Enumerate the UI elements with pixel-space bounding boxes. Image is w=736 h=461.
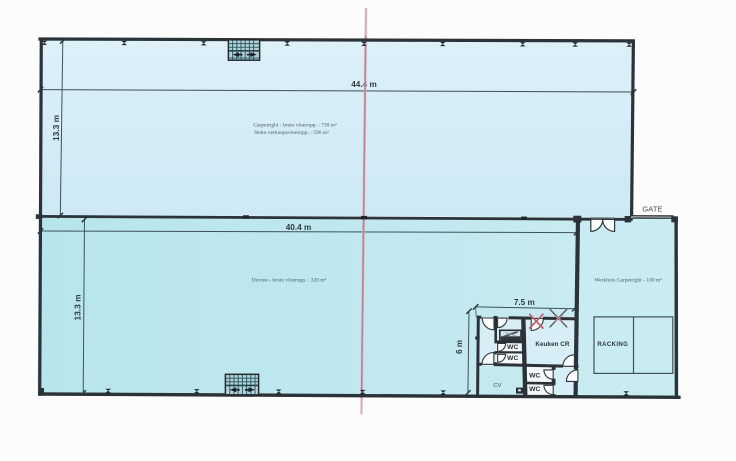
svg-text:WC: WC (507, 344, 518, 351)
svg-text:RACKING: RACKING (597, 342, 628, 348)
svg-text:Carpetright - bruto vloeropp.: Carpetright - bruto vloeropp. : 730 m² (253, 123, 337, 129)
svg-text:WC: WC (529, 386, 540, 393)
svg-text:CV: CV (493, 383, 501, 389)
svg-text:13.3 m: 13.3 m (51, 115, 61, 141)
svg-text:Keuken CR: Keuken CR (535, 341, 569, 348)
svg-text:13.3 m: 13.3 m (73, 294, 83, 320)
svg-text:7.5 m: 7.5 m (514, 298, 535, 307)
svg-text:GATE: GATE (642, 205, 662, 214)
svg-text:WC: WC (507, 355, 518, 362)
svg-text:Werkhuis Carpetright - 100 m²: Werkhuis Carpetright - 100 m² (594, 277, 662, 283)
svg-text:6 m: 6 m (455, 340, 464, 354)
svg-text:Duvine - bruto vloeropp. : 320: Duvine - bruto vloeropp. : 320 m² (252, 277, 327, 283)
svg-text:40.4 m: 40.4 m (286, 223, 312, 232)
svg-text:Netto verkoopsvloeropp. : 590: Netto verkoopsvloeropp. : 590 m² (254, 130, 329, 136)
svg-text:WC: WC (529, 373, 540, 380)
